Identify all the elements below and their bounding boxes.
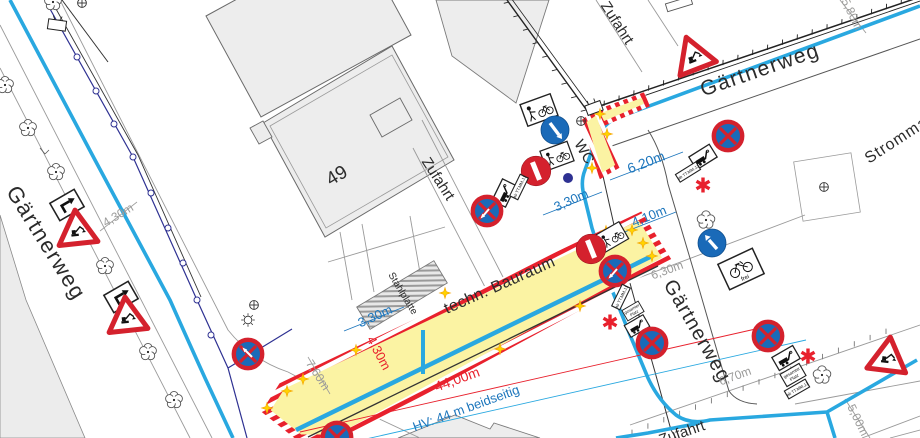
tree-icon — [140, 343, 157, 359]
roadworks-warning-sign-icon — [867, 335, 910, 373]
construction-traffic-site-plan: ab TT.MM.JJ ab TT.MM.JJ frei ab TT.MM.JJ… — [0, 0, 920, 438]
mandatory-direction-sign-icon — [698, 229, 726, 257]
duct-line — [51, 0, 201, 297]
no-stopping-sign-icon — [638, 329, 666, 357]
bush-icon — [697, 211, 715, 228]
tree-icon — [20, 119, 37, 135]
bush-icon — [813, 366, 831, 383]
survey-point-icon — [78, 0, 87, 7]
street-lamp-icon — [241, 313, 255, 327]
no-stopping-sign-icon — [473, 197, 501, 225]
asterisk-marker-icon — [697, 178, 710, 193]
building-north — [436, 0, 549, 103]
no-stopping-sign-icon — [714, 122, 742, 150]
warning-lamp-icon — [440, 288, 451, 299]
asterisk-marker-icon — [604, 315, 617, 330]
no-stopping-sign-icon — [601, 257, 629, 285]
no-stopping-sign-icon — [754, 322, 782, 350]
wc-barrier-arm — [597, 95, 647, 124]
no-entry-sign-icon — [576, 234, 606, 264]
small-structure-icon — [665, 0, 692, 12]
top-street-north-edge — [588, 0, 920, 110]
mandatory-direction-sign-icon — [541, 116, 569, 144]
survey-point-icon — [820, 183, 829, 192]
tree-icon — [0, 76, 13, 92]
no-stopping-sign-icon — [323, 423, 351, 438]
survey-point-icon — [250, 301, 259, 310]
hydrant-node-icon — [563, 173, 573, 183]
asterisk-marker-icon — [802, 349, 815, 364]
shed-icon — [47, 15, 67, 31]
tree-icon — [45, 0, 62, 10]
fence-ticks-top-street — [604, 0, 916, 106]
no-stopping-sign-icon — [234, 340, 262, 368]
tree-icon — [97, 257, 114, 273]
survey-point-icon — [577, 117, 586, 126]
bicycles-permitted-panel: frei — [718, 248, 764, 289]
date-panel: ab TT.MM.JJ — [675, 162, 700, 182]
tree-icon — [166, 391, 183, 407]
